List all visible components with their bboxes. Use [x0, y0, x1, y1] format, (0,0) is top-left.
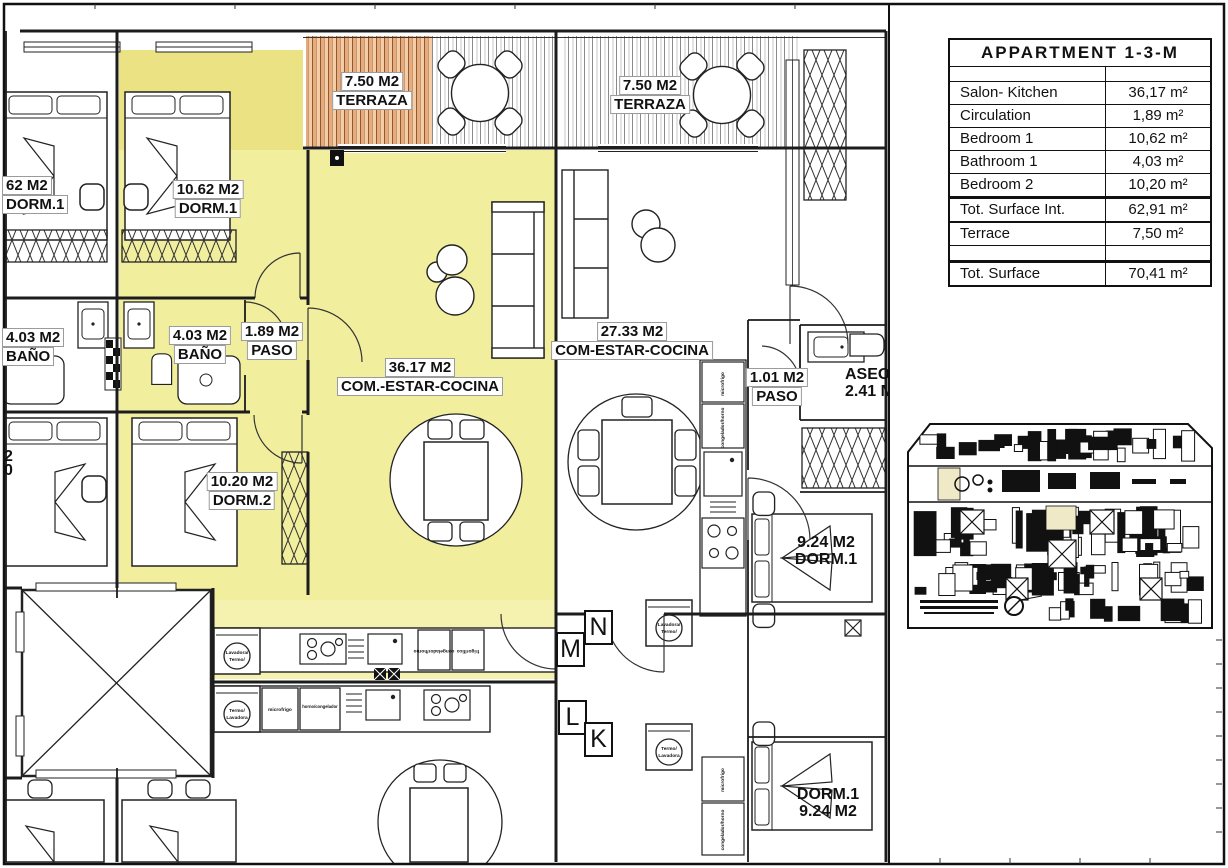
plan-label-layer: 7.50 M2 TERRAZA 7.50 M2 TERRAZA 62 M2 DO…	[0, 0, 889, 868]
row-value: 10,62 m²	[1105, 128, 1210, 150]
room-label-bano: 4.03 M2 BAÑO	[169, 326, 231, 364]
table-row-total-int: Tot. Surface Int. 62,91 m²	[950, 197, 1210, 223]
room-label-aseo: ASEO 2.41 M2	[842, 366, 889, 400]
table-row: Terrace 7,50 m²	[950, 223, 1210, 246]
row-value: 62,91 m²	[1105, 199, 1210, 221]
table-row: Bedroom 1 10,62 m²	[950, 128, 1210, 151]
room-label-dorm1: 10.62 M2 DORM.1	[173, 180, 244, 218]
floor-plan-sheet: Lavadora/ Termo/ Termo/ Lavadora Lavador…	[0, 0, 1228, 868]
table-row: Bedroom 2 10,20 m²	[950, 174, 1210, 197]
edge-cut-label: 2 0	[1, 450, 16, 478]
unit-marker-l: L	[558, 700, 587, 735]
table-row: Salon- Kitchen 36,17 m²	[950, 82, 1210, 105]
table-row: Circulation 1,89 m²	[950, 105, 1210, 128]
room-label-terraza-2: 7.50 M2 TERRAZA	[610, 76, 690, 114]
room-label-terraza-1: 7.50 M2 TERRAZA	[332, 72, 412, 110]
table-title: APPARTMENT 1-3-M	[950, 40, 1210, 67]
table-row: Bathroom 1 4,03 m²	[950, 151, 1210, 174]
row-label: Tot. Surface Int.	[950, 199, 1105, 221]
room-label-dorm1-right: 9.24 M2 DORM.1	[792, 534, 860, 568]
room-label-dorm1-cut: 62 M2 DORM.1	[2, 176, 68, 214]
key-plan	[906, 424, 1214, 628]
row-value: 7,50 m²	[1105, 223, 1210, 245]
row-label: Salon- Kitchen	[950, 82, 1105, 104]
row-label: Bedroom 1	[950, 128, 1105, 150]
row-label: Bedroom 2	[950, 174, 1105, 196]
room-label-paso-2: 1.01 M2 PASO	[746, 368, 808, 406]
room-label-salon-2: 27.33 M2 COM-ESTAR-COCINA	[551, 322, 713, 360]
row-value: 10,20 m²	[1105, 174, 1210, 196]
row-value: 1,89 m²	[1105, 105, 1210, 127]
room-label-paso: 1.89 M2 PASO	[241, 322, 303, 360]
unit-marker-n: N	[584, 610, 613, 645]
table-spacer	[950, 246, 1210, 261]
room-label-dorm1-bottom: DORM.1 9.24 M2	[794, 786, 862, 820]
row-value: 4,03 m²	[1105, 151, 1210, 173]
room-label-dorm2: 10.20 M2 DORM.2	[207, 472, 278, 510]
row-value: 70,41 m²	[1105, 263, 1210, 285]
row-label: Circulation	[950, 105, 1105, 127]
room-label-bano-cut: 4.03 M2 BAÑO	[2, 328, 64, 366]
unit-marker-m: M	[556, 632, 585, 667]
row-value: 36,17 m²	[1105, 82, 1210, 104]
unit-marker-k: K	[584, 722, 613, 757]
table-spacer	[950, 67, 1210, 82]
room-label-salon: 36.17 M2 COM.-ESTAR-COCINA	[337, 358, 503, 396]
row-label: Bathroom 1	[950, 151, 1105, 173]
row-label: Terrace	[950, 223, 1105, 245]
table-row-total: Tot. Surface 70,41 m²	[950, 261, 1210, 285]
row-label: Tot. Surface	[950, 263, 1105, 285]
apartment-area-table: APPARTMENT 1-3-M Salon- Kitchen 36,17 m²…	[948, 38, 1212, 287]
